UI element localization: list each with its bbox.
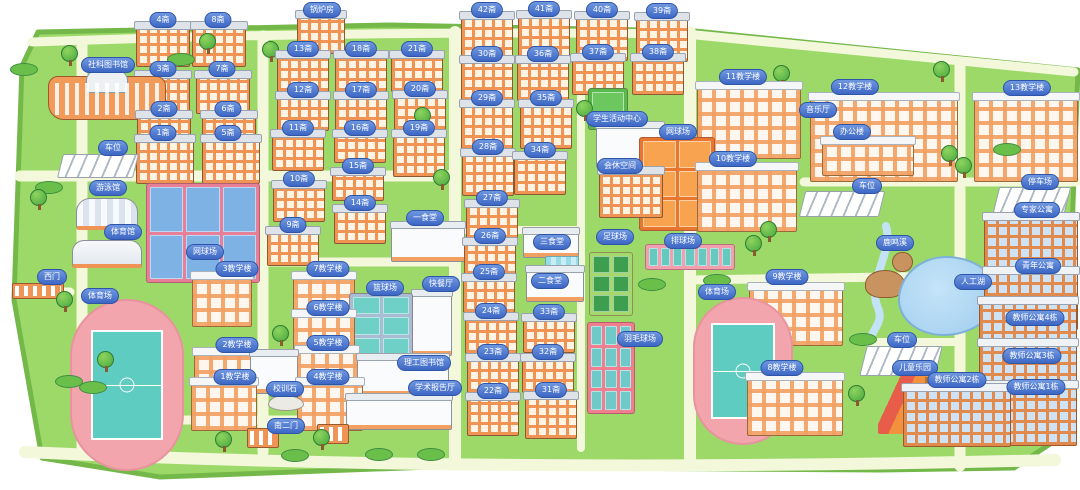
map-label: 学术报告厅 <box>408 380 462 396</box>
map-label: 30斋 <box>471 46 503 62</box>
map-label: 办公楼 <box>833 124 871 140</box>
map-label: 13教学楼 <box>1003 80 1051 96</box>
court-cell <box>620 391 631 410</box>
tree-icon <box>955 157 972 174</box>
map-label: 26斋 <box>474 228 506 244</box>
court-cell <box>649 248 658 266</box>
building-dorm <box>272 133 324 171</box>
map-label: 7教学楼 <box>306 261 349 277</box>
map-label: 教师公寓1栋 <box>1006 379 1065 395</box>
tree-icon <box>272 325 289 342</box>
bush-icon <box>417 448 445 461</box>
parking-strip <box>57 154 139 178</box>
map-label: 16斋 <box>344 120 376 136</box>
map-label: 教师公寓3栋 <box>1002 348 1061 364</box>
map-label: 40斋 <box>586 2 618 18</box>
map-label: 34斋 <box>524 142 556 158</box>
court-cell <box>605 391 616 410</box>
map-label: 38斋 <box>642 44 674 60</box>
court-cell <box>593 295 610 312</box>
map-label: 教师公寓2栋 <box>927 372 986 388</box>
map-label: 校训石 <box>266 381 304 397</box>
building-dorm <box>467 396 519 436</box>
map-label: 羽毛球场 <box>617 331 663 347</box>
map-label: 人工湖 <box>954 274 992 290</box>
map-label: 31斋 <box>535 382 567 398</box>
map-label: 36斋 <box>527 46 559 62</box>
map-label: 4教学楼 <box>306 369 349 385</box>
court-cell <box>710 248 719 266</box>
football-courts <box>589 252 633 316</box>
map-label: 三食堂 <box>533 234 571 250</box>
tree-icon <box>215 431 232 448</box>
map-label: 7斋 <box>208 61 235 77</box>
map-label: 13斋 <box>287 41 319 57</box>
map-label: 足球场 <box>596 229 634 245</box>
map-label: 28斋 <box>472 139 504 155</box>
fast-food <box>412 292 452 356</box>
map-label: 1教学楼 <box>213 369 256 385</box>
tree-icon <box>313 429 330 446</box>
map-label: 12教学楼 <box>831 79 879 95</box>
map-label: 5教学楼 <box>306 335 349 351</box>
map-label: 8斋 <box>204 12 231 28</box>
map-label: 10斋 <box>283 171 315 187</box>
meeting-space <box>599 170 663 218</box>
map-label: 25斋 <box>473 264 505 280</box>
building-teach <box>192 275 252 327</box>
map-label: 2斋 <box>150 101 177 117</box>
bush-icon <box>281 449 309 462</box>
tree-icon <box>745 235 762 252</box>
gymnasium <box>72 240 142 268</box>
map-label: 9教学楼 <box>765 269 808 285</box>
map-label: 游泳馆 <box>89 180 127 196</box>
map-label: 体育场 <box>698 284 736 300</box>
map-label: 体育馆 <box>104 224 142 240</box>
map-label: 41斋 <box>528 1 560 17</box>
map-label: 音乐厅 <box>799 102 837 118</box>
map-label: 29斋 <box>471 90 503 106</box>
building-dorm <box>334 208 386 244</box>
map-label: 23斋 <box>477 344 509 360</box>
map-label: 33斋 <box>533 304 565 320</box>
map-label: 22斋 <box>477 383 509 399</box>
map-label: 会休空间 <box>597 158 643 174</box>
court-cell <box>383 317 410 334</box>
campus-map: 社科图书馆4斋8斋3斋7斋2斋6斋1斋5斋锅炉房13斋18斋21斋12斋17斋2… <box>0 0 1080 490</box>
map-label: 专家公寓 <box>1014 202 1060 218</box>
map-label: 6教学楼 <box>306 300 349 316</box>
map-label: 二食堂 <box>531 273 569 289</box>
motto-stone <box>268 395 304 411</box>
bush-icon <box>10 63 38 76</box>
map-label: 车位 <box>98 140 128 156</box>
map-label: 32斋 <box>532 344 564 360</box>
map-label: 11斋 <box>282 120 314 136</box>
tree-icon <box>941 145 958 162</box>
bush-icon <box>638 278 666 291</box>
bush-icon <box>849 333 877 346</box>
court-cell <box>673 248 682 266</box>
map-label: 39斋 <box>646 3 678 19</box>
map-label: 排球场 <box>664 233 702 249</box>
map-label: 24斋 <box>475 303 507 319</box>
building-dorm <box>632 57 684 95</box>
court-cell <box>593 276 610 293</box>
court-cell <box>620 370 631 389</box>
map-label: 18斋 <box>345 41 377 57</box>
map-label: 37斋 <box>582 44 614 60</box>
tree-icon <box>97 351 114 368</box>
map-label: 停车场 <box>1021 174 1059 190</box>
court-cell <box>605 348 616 367</box>
bush-icon <box>993 143 1021 156</box>
court-cell <box>150 187 183 232</box>
map-label: 理工图书馆 <box>397 355 451 371</box>
court-cell <box>591 348 602 367</box>
court-cell <box>150 235 183 280</box>
map-label: 网球场 <box>659 124 697 140</box>
map-label: 42斋 <box>471 2 503 18</box>
map-label: 车位 <box>887 332 917 348</box>
map-label: 体育场 <box>81 288 119 304</box>
map-label: 12斋 <box>287 82 319 98</box>
building-apt <box>903 387 1011 447</box>
map-label: 20斋 <box>404 81 436 97</box>
court-cell <box>186 187 219 232</box>
court-cell <box>353 317 380 334</box>
map-label: 车位 <box>852 178 882 194</box>
map-label: 17斋 <box>345 82 377 98</box>
map-label: 3教学楼 <box>215 261 258 277</box>
office-building <box>822 140 914 176</box>
tree-icon <box>199 33 216 50</box>
map-label: 南二门 <box>267 418 305 434</box>
court-cell <box>685 248 694 266</box>
court-cell <box>698 248 707 266</box>
building-dorm <box>136 138 194 184</box>
map-label: 10教学楼 <box>709 151 757 167</box>
building-dorm <box>525 395 577 439</box>
tree-icon <box>30 189 47 206</box>
map-label: 一食堂 <box>406 210 444 226</box>
court-cell <box>643 141 676 168</box>
building-teach <box>974 96 1078 182</box>
court-cell <box>661 248 670 266</box>
map-label: 学生活动中心 <box>586 111 648 127</box>
map-label: 11教学楼 <box>719 69 767 85</box>
court-cell <box>613 256 630 273</box>
court-cell <box>593 256 610 273</box>
court-cell <box>591 326 602 345</box>
canteen-1 <box>391 224 465 262</box>
court-cell <box>605 326 616 345</box>
map-label: 社科图书馆 <box>81 57 135 73</box>
map-label: 8教学楼 <box>760 360 803 376</box>
tree-icon <box>433 169 450 186</box>
court-cell <box>620 348 631 367</box>
building-dorm <box>514 155 566 195</box>
map-label: 4斋 <box>149 12 176 28</box>
court-cell <box>591 391 602 410</box>
map-label: 网球场 <box>186 244 224 260</box>
map-label: 青年公寓 <box>1015 258 1061 274</box>
court-cell <box>605 370 616 389</box>
building-dorm <box>202 138 260 184</box>
map-label: 2教学楼 <box>215 337 258 353</box>
court-cell <box>223 187 256 232</box>
map-items-layer: 社科图书馆4斋8斋3斋7斋2斋6斋1斋5斋锅炉房13斋18斋21斋12斋17斋2… <box>0 0 1080 490</box>
map-label: 锅炉房 <box>303 2 341 18</box>
tree-icon <box>61 45 78 62</box>
map-label: 35斋 <box>530 90 562 106</box>
building-teach <box>747 376 843 436</box>
bush-icon <box>79 381 107 394</box>
map-label: 15斋 <box>342 158 374 174</box>
map-label: 西门 <box>37 269 67 285</box>
map-label: 14斋 <box>344 195 376 211</box>
map-label: 3斋 <box>149 61 176 77</box>
tree-icon <box>933 61 950 78</box>
map-label: 6斋 <box>214 101 241 117</box>
court-cell <box>613 295 630 312</box>
tree-icon <box>773 65 790 82</box>
court-cell <box>383 297 410 314</box>
map-label: 5斋 <box>214 125 241 141</box>
building-teach <box>697 166 797 232</box>
map-label: 27斋 <box>476 190 508 206</box>
court-cell <box>613 276 630 293</box>
map-label: 快餐厅 <box>422 276 460 292</box>
lecture-hall <box>346 396 452 430</box>
building-teach <box>191 381 257 431</box>
map-label: 19斋 <box>403 120 435 136</box>
map-label: 教师公寓4栋 <box>1005 310 1064 326</box>
tree-icon <box>56 291 73 308</box>
map-label: 9斋 <box>279 217 306 233</box>
map-label: 鹿鸣溪 <box>876 235 914 251</box>
tree-icon <box>760 221 777 238</box>
tree-icon <box>848 385 865 402</box>
map-label: 1斋 <box>149 125 176 141</box>
court-cell <box>591 370 602 389</box>
parking-strip <box>799 191 885 217</box>
court-cell <box>722 248 731 266</box>
map-label: 21斋 <box>401 41 433 57</box>
map-label: 篮球场 <box>366 280 404 296</box>
bush-icon <box>365 448 393 461</box>
